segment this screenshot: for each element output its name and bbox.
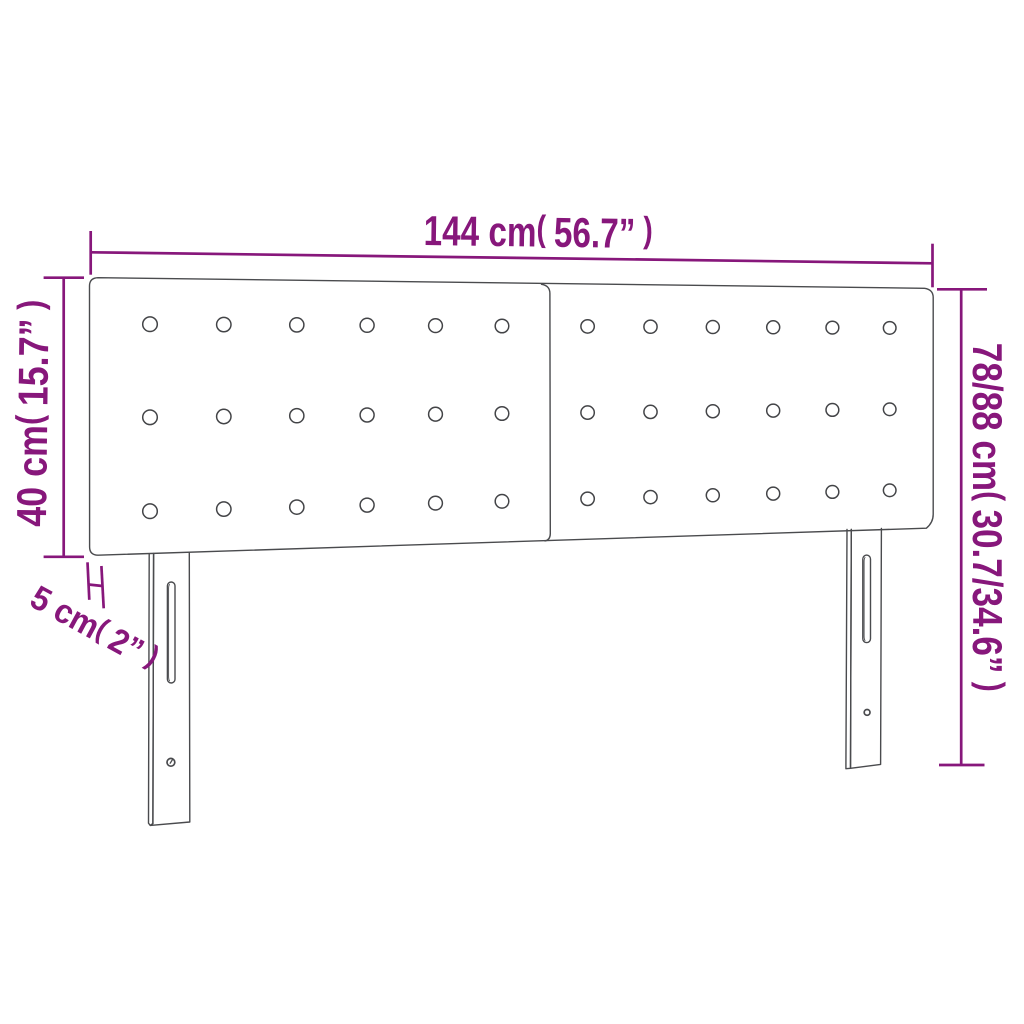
svg-text:5 cm( 2” ): 5 cm( 2” )	[24, 578, 164, 678]
svg-text:78/88 cm( 30.7/34.6” ): 78/88 cm( 30.7/34.6” )	[964, 343, 1012, 692]
svg-text:144 cm( 56.7” ): 144 cm( 56.7” )	[423, 206, 653, 257]
svg-text:40 cm( 15.7” ): 40 cm( 15.7” )	[7, 299, 58, 527]
